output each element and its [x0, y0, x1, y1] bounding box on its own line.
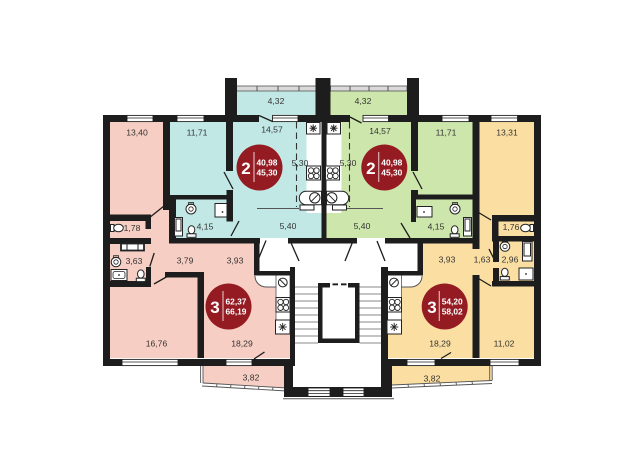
svg-text:5,30: 5,30	[292, 158, 309, 168]
svg-text:14,57: 14,57	[369, 126, 391, 136]
svg-text:2: 2	[241, 159, 250, 178]
svg-text:45,30: 45,30	[381, 168, 402, 178]
svg-text:3,93: 3,93	[439, 255, 456, 265]
svg-text:18,29: 18,29	[429, 338, 451, 348]
svg-text:2,96: 2,96	[502, 255, 519, 265]
svg-text:45,30: 45,30	[257, 168, 278, 178]
svg-text:18,29: 18,29	[231, 338, 253, 348]
svg-text:11,71: 11,71	[436, 128, 457, 138]
svg-text:40,98: 40,98	[381, 158, 402, 168]
svg-text:1,63: 1,63	[474, 255, 491, 265]
svg-text:3: 3	[210, 298, 219, 317]
svg-text:4,15: 4,15	[428, 221, 445, 231]
svg-text:3,79: 3,79	[177, 256, 194, 266]
svg-text:5,40: 5,40	[280, 221, 297, 231]
svg-text:11,71: 11,71	[187, 128, 208, 138]
svg-text:3: 3	[427, 298, 436, 317]
svg-text:14,57: 14,57	[261, 125, 283, 135]
svg-text:66,19: 66,19	[226, 307, 247, 317]
svg-text:4,32: 4,32	[268, 96, 285, 106]
svg-text:3,82: 3,82	[424, 374, 441, 384]
svg-text:4,15: 4,15	[197, 221, 214, 231]
svg-text:40,98: 40,98	[257, 158, 278, 168]
svg-text:3,82: 3,82	[243, 373, 260, 383]
svg-text:16,76: 16,76	[146, 338, 168, 348]
svg-text:5,30: 5,30	[340, 158, 357, 168]
svg-text:2: 2	[366, 159, 375, 178]
svg-text:13,40: 13,40	[126, 128, 148, 138]
svg-text:4,32: 4,32	[355, 96, 372, 106]
svg-text:54,20: 54,20	[442, 296, 463, 306]
svg-text:3,93: 3,93	[227, 256, 244, 266]
svg-text:58,02: 58,02	[442, 307, 463, 317]
svg-text:1,78: 1,78	[124, 223, 141, 233]
svg-text:5,40: 5,40	[354, 221, 371, 231]
svg-text:1,76: 1,76	[503, 222, 520, 232]
svg-text:13,31: 13,31	[496, 128, 518, 138]
svg-text:3,63: 3,63	[126, 256, 143, 266]
svg-text:11,02: 11,02	[494, 338, 515, 348]
svg-text:62,37: 62,37	[226, 296, 247, 306]
